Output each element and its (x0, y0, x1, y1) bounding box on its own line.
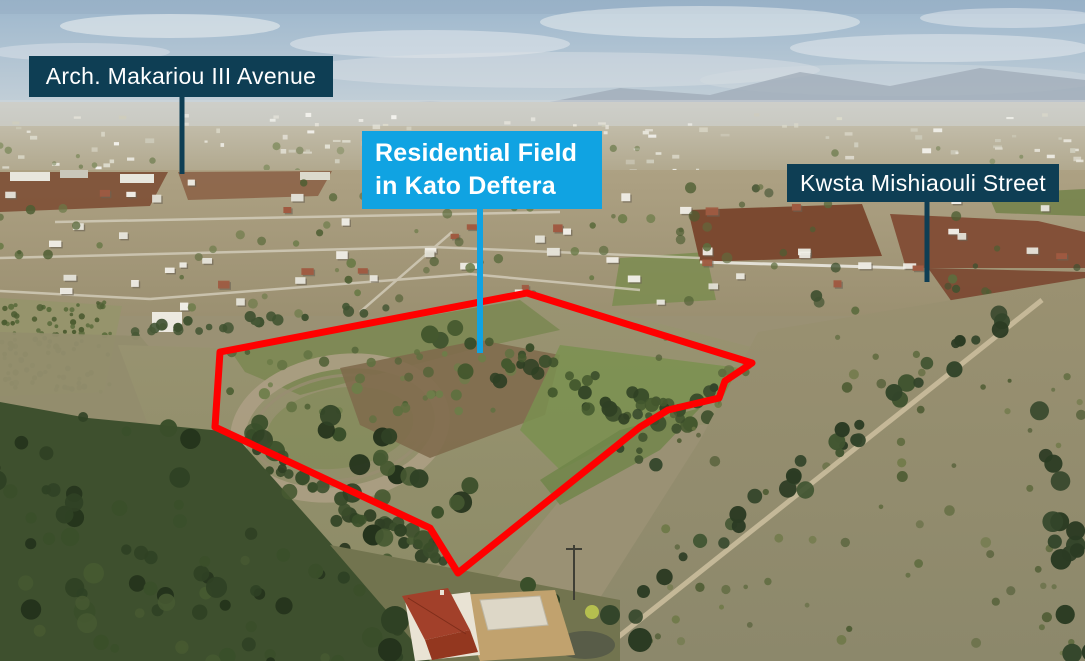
label-kwsta-mishiaouli-street: Kwsta Mishiaouli Street (787, 164, 1059, 202)
chimney (440, 590, 444, 595)
label-arch-makariou-iii-avenue-text: Arch. Makariou III Avenue (46, 63, 316, 90)
outbuilding (480, 596, 548, 630)
label-residential-field-line1: Residential Field (375, 137, 577, 170)
annotated-aerial-photo: Arch. Makariou III Avenue Residential Fi… (0, 0, 1085, 661)
haze (0, 100, 1085, 126)
label-residential-field-line2: in Kato Deftera (375, 170, 556, 203)
label-kwsta-mishiaouli-street-text: Kwsta Mishiaouli Street (800, 170, 1046, 197)
label-residential-field: Residential Field in Kato Deftera (362, 131, 602, 209)
aerial-photo-scene (0, 0, 1085, 661)
label-arch-makariou-iii-avenue: Arch. Makariou III Avenue (29, 56, 333, 97)
yellow-bush (585, 605, 599, 619)
